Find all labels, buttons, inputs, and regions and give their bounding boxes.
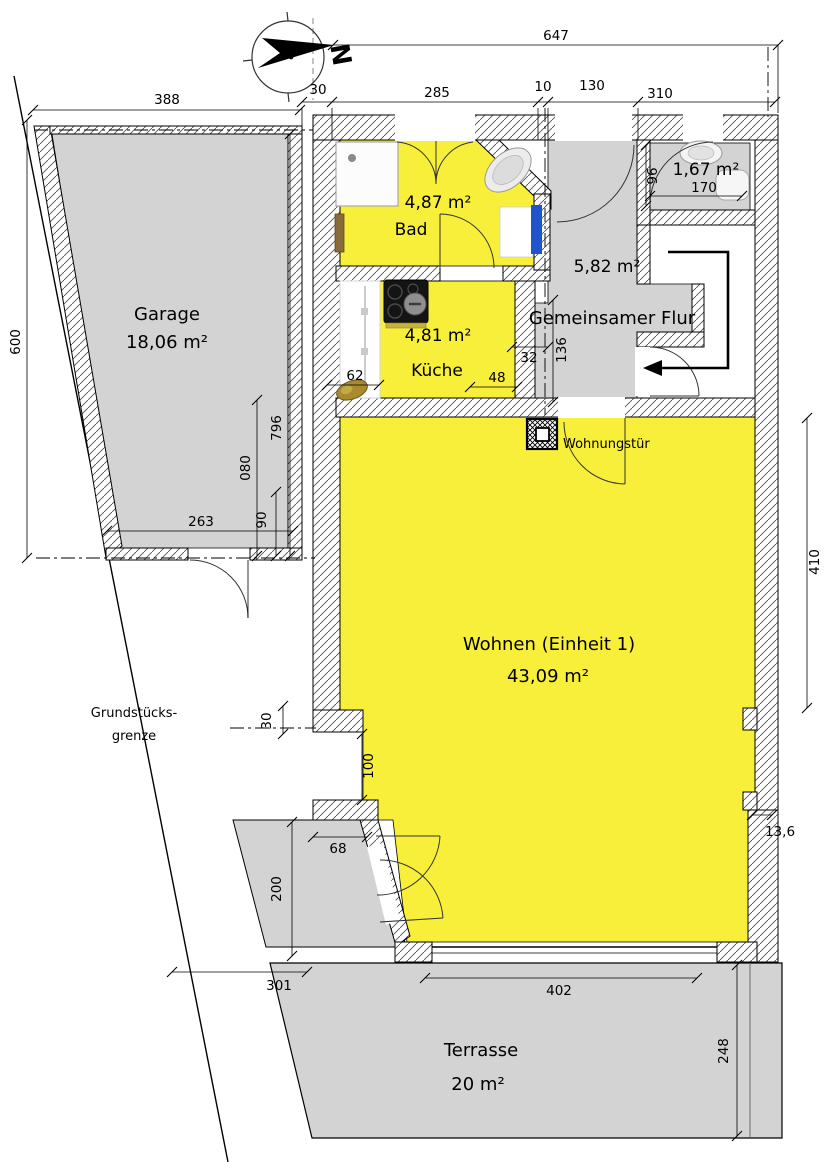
dim-200: 200 <box>269 876 285 902</box>
garage-door-arc <box>190 560 248 618</box>
dim-32: 32 <box>520 350 537 366</box>
bad-name: Bad <box>395 220 428 240</box>
floor-plan-drawing: N Garage 18,06 m² 4,87 m² Bad 4,81 m² Kü… <box>0 0 834 1162</box>
garage-room <box>34 126 302 618</box>
wohnen-name: Wohnen (Einheit 1) <box>463 634 635 655</box>
property-boundary-label-1: Grundstücks- <box>91 706 178 721</box>
dim-796: 796 <box>269 415 285 441</box>
dim-647: 647 <box>543 28 569 44</box>
dim-90: 90 <box>254 511 270 528</box>
apartment-door-column <box>527 419 557 449</box>
terrace <box>270 963 782 1138</box>
garage-name: Garage <box>134 304 200 325</box>
counter-knob <box>361 348 368 355</box>
floor-plan: N Garage 18,06 m² 4,87 m² Bad 4,81 m² Kü… <box>0 0 834 1162</box>
dim-388: 388 <box>154 92 180 108</box>
kueche-area: 4,81 m² <box>405 326 472 346</box>
dim-263: 263 <box>188 514 214 530</box>
dim-248: 248 <box>716 1038 732 1064</box>
bad-cabinet <box>500 207 533 257</box>
dim-100: 100 <box>361 753 377 779</box>
stove <box>384 280 428 328</box>
property-boundary-label-2: grenze <box>112 729 156 744</box>
dim-62: 62 <box>346 368 363 384</box>
apartment-door-label: Wohnungstür <box>563 437 650 452</box>
dim-10: 10 <box>534 79 551 95</box>
shower-tray <box>336 142 398 206</box>
garage-area: 18,06 m² <box>126 332 208 353</box>
flur-area: 5,82 m² <box>574 257 641 277</box>
dim-30-left: 30 <box>259 712 275 729</box>
flur-name: Gemeinsamer Flur <box>529 308 696 329</box>
dim-402: 402 <box>546 983 572 999</box>
dim-080: 080 <box>238 455 254 481</box>
north-arrow: N <box>243 12 357 102</box>
counter-knob <box>361 308 368 315</box>
bad-area: 4,87 m² <box>405 193 472 213</box>
north-arrow-pointer <box>258 38 334 68</box>
wohnen-area: 43,09 m² <box>507 666 589 687</box>
dim-96: 96 <box>645 167 661 184</box>
dim-285: 285 <box>424 85 450 101</box>
wc-area: 1,67 m² <box>673 160 740 180</box>
north-letter: N <box>323 41 356 68</box>
dim-301: 301 <box>266 978 292 994</box>
bad-blue-panel <box>531 205 542 254</box>
terrasse-area: 20 m² <box>451 1074 504 1095</box>
dim-600: 600 <box>8 329 24 355</box>
bad-radiator <box>335 214 344 252</box>
kueche-name: Küche <box>411 361 463 381</box>
dim-48: 48 <box>488 370 505 386</box>
dim-68: 68 <box>329 841 346 857</box>
dim-410: 410 <box>807 549 823 575</box>
dim-13-6: 13,6 <box>765 824 795 840</box>
dim-30-top: 30 <box>309 82 326 98</box>
dim-170: 170 <box>691 180 717 196</box>
dim-130: 130 <box>579 78 605 94</box>
shower-drain <box>348 154 356 162</box>
terrasse-name: Terrasse <box>443 1040 518 1061</box>
dim-136: 136 <box>554 337 570 363</box>
dim-310: 310 <box>647 86 673 102</box>
